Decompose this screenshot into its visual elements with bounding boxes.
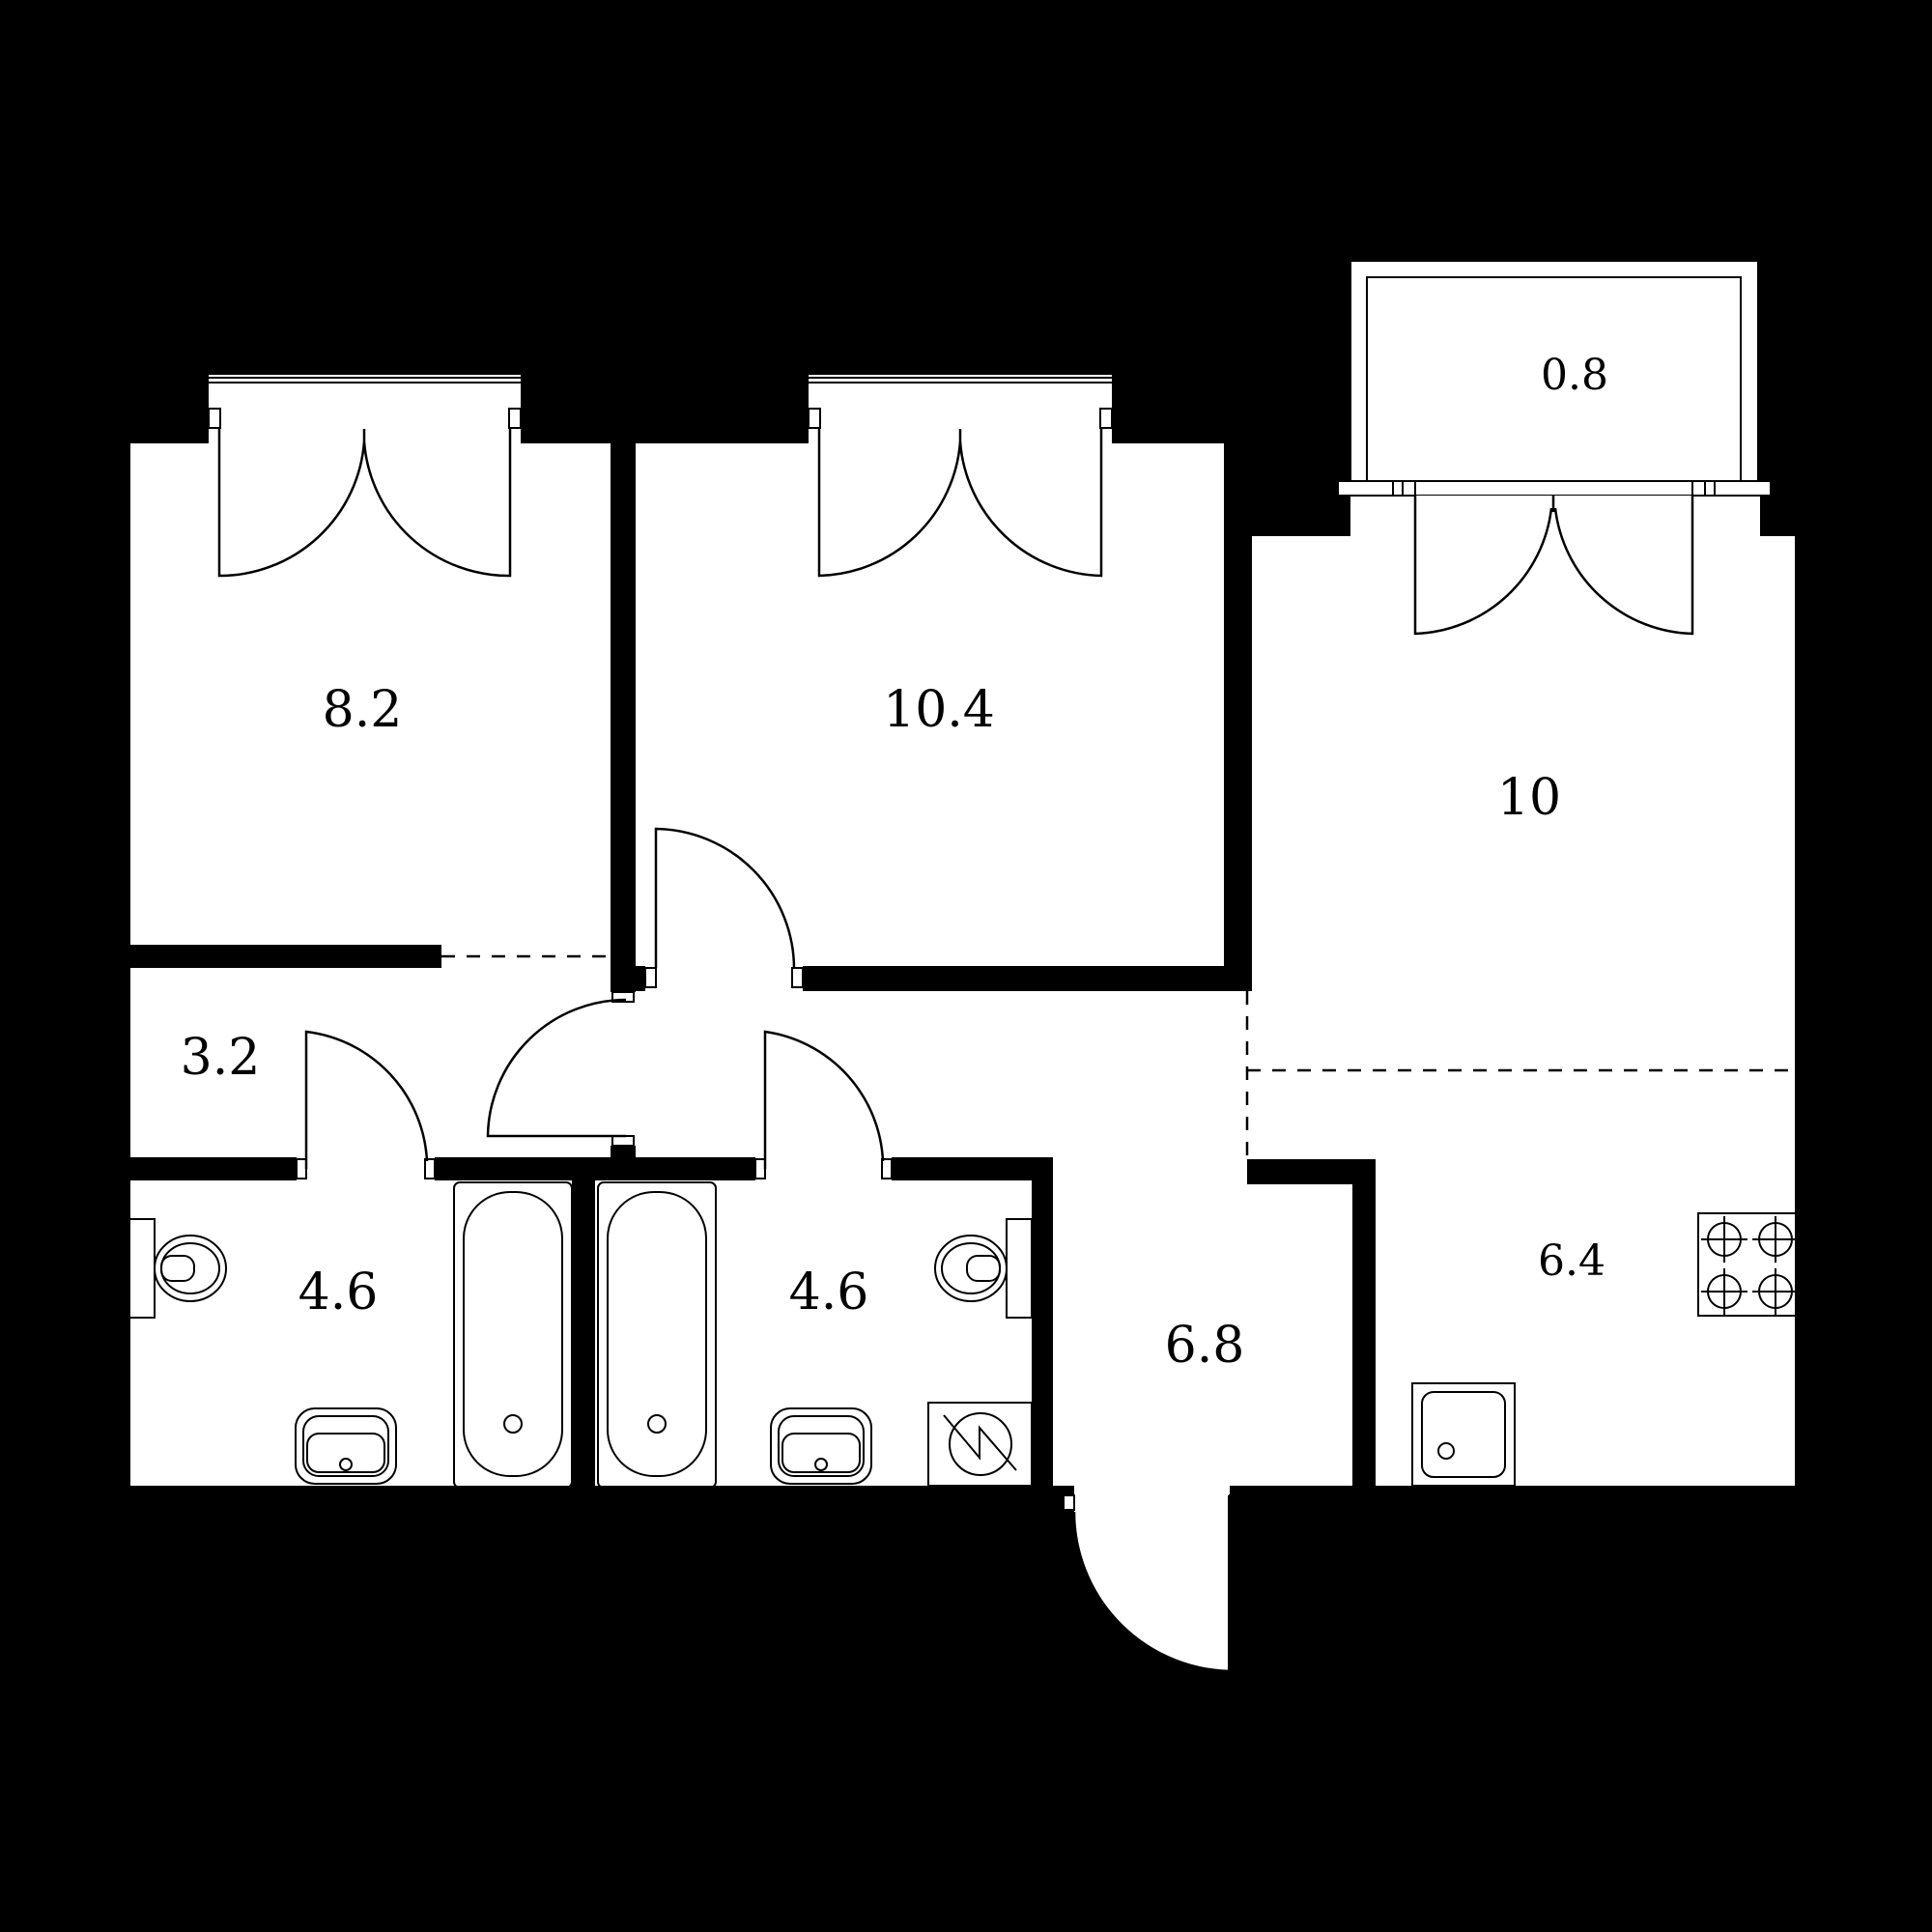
wall-top-living-left: [1252, 386, 1350, 536]
door-jamb: [645, 968, 656, 987]
label-balcony: 0.8: [1541, 351, 1608, 400]
label-kitchen: 6.4: [1538, 1236, 1605, 1286]
wall-bath-top-c: [892, 1157, 1053, 1180]
label-corridor: 3.2: [181, 1029, 261, 1087]
label-hallway: 6.8: [1165, 1317, 1245, 1375]
wall-stub-hall-door: [611, 1146, 636, 1157]
door-jamb: [297, 1159, 306, 1179]
door-jamb: [1064, 1495, 1074, 1510]
floor-plan-canvas: 8.2 10.4 10 0.8 3.2 4.6 4.6 6.8 6.4: [0, 0, 1932, 1932]
window-jamb: [209, 409, 220, 428]
window-jamb: [1100, 409, 1112, 428]
wall-bedrooms-divider: [611, 360, 636, 992]
floor-right-section: [1252, 496, 1795, 1486]
wall-living-left: [1224, 443, 1252, 991]
wall-hall-kitchen: [1352, 1159, 1376, 1522]
door-jamb: [755, 1159, 765, 1179]
label-bathroom-right: 4.6: [789, 1264, 869, 1321]
floor-plan-svg: 8.2 10.4 10 0.8 3.2 4.6 4.6 6.8 6.4: [0, 0, 1932, 1932]
wall-bath-top-a: [130, 1157, 297, 1180]
label-bedroom-middle: 10.4: [883, 681, 995, 739]
wall-outer-left: [95, 338, 130, 1522]
wall-outer-bottom: [95, 1486, 1828, 1522]
door-jamb: [425, 1159, 435, 1179]
wall-bedroom-middle-bottom: [803, 966, 1252, 991]
wall-stub-bedroom-door: [634, 966, 645, 991]
label-living-room: 10: [1497, 769, 1561, 827]
wall-outer-right: [1795, 386, 1828, 1522]
wall-bedroom-left-corridor: [130, 945, 441, 968]
label-bedroom-left: 8.2: [323, 681, 403, 739]
door-jamb: [882, 1159, 892, 1179]
door-jamb: [792, 968, 803, 987]
label-bathroom-left: 4.6: [298, 1264, 379, 1321]
door-jamb: [612, 1136, 634, 1146]
wall-bathroom-right-side: [1032, 1157, 1053, 1488]
entrance-door-leaf: [1228, 1495, 1239, 1671]
window-jamb: [809, 409, 820, 428]
wall-bath-top-b: [435, 1157, 755, 1180]
window-jamb: [509, 409, 521, 428]
wall-bathrooms-divider: [572, 1180, 595, 1488]
